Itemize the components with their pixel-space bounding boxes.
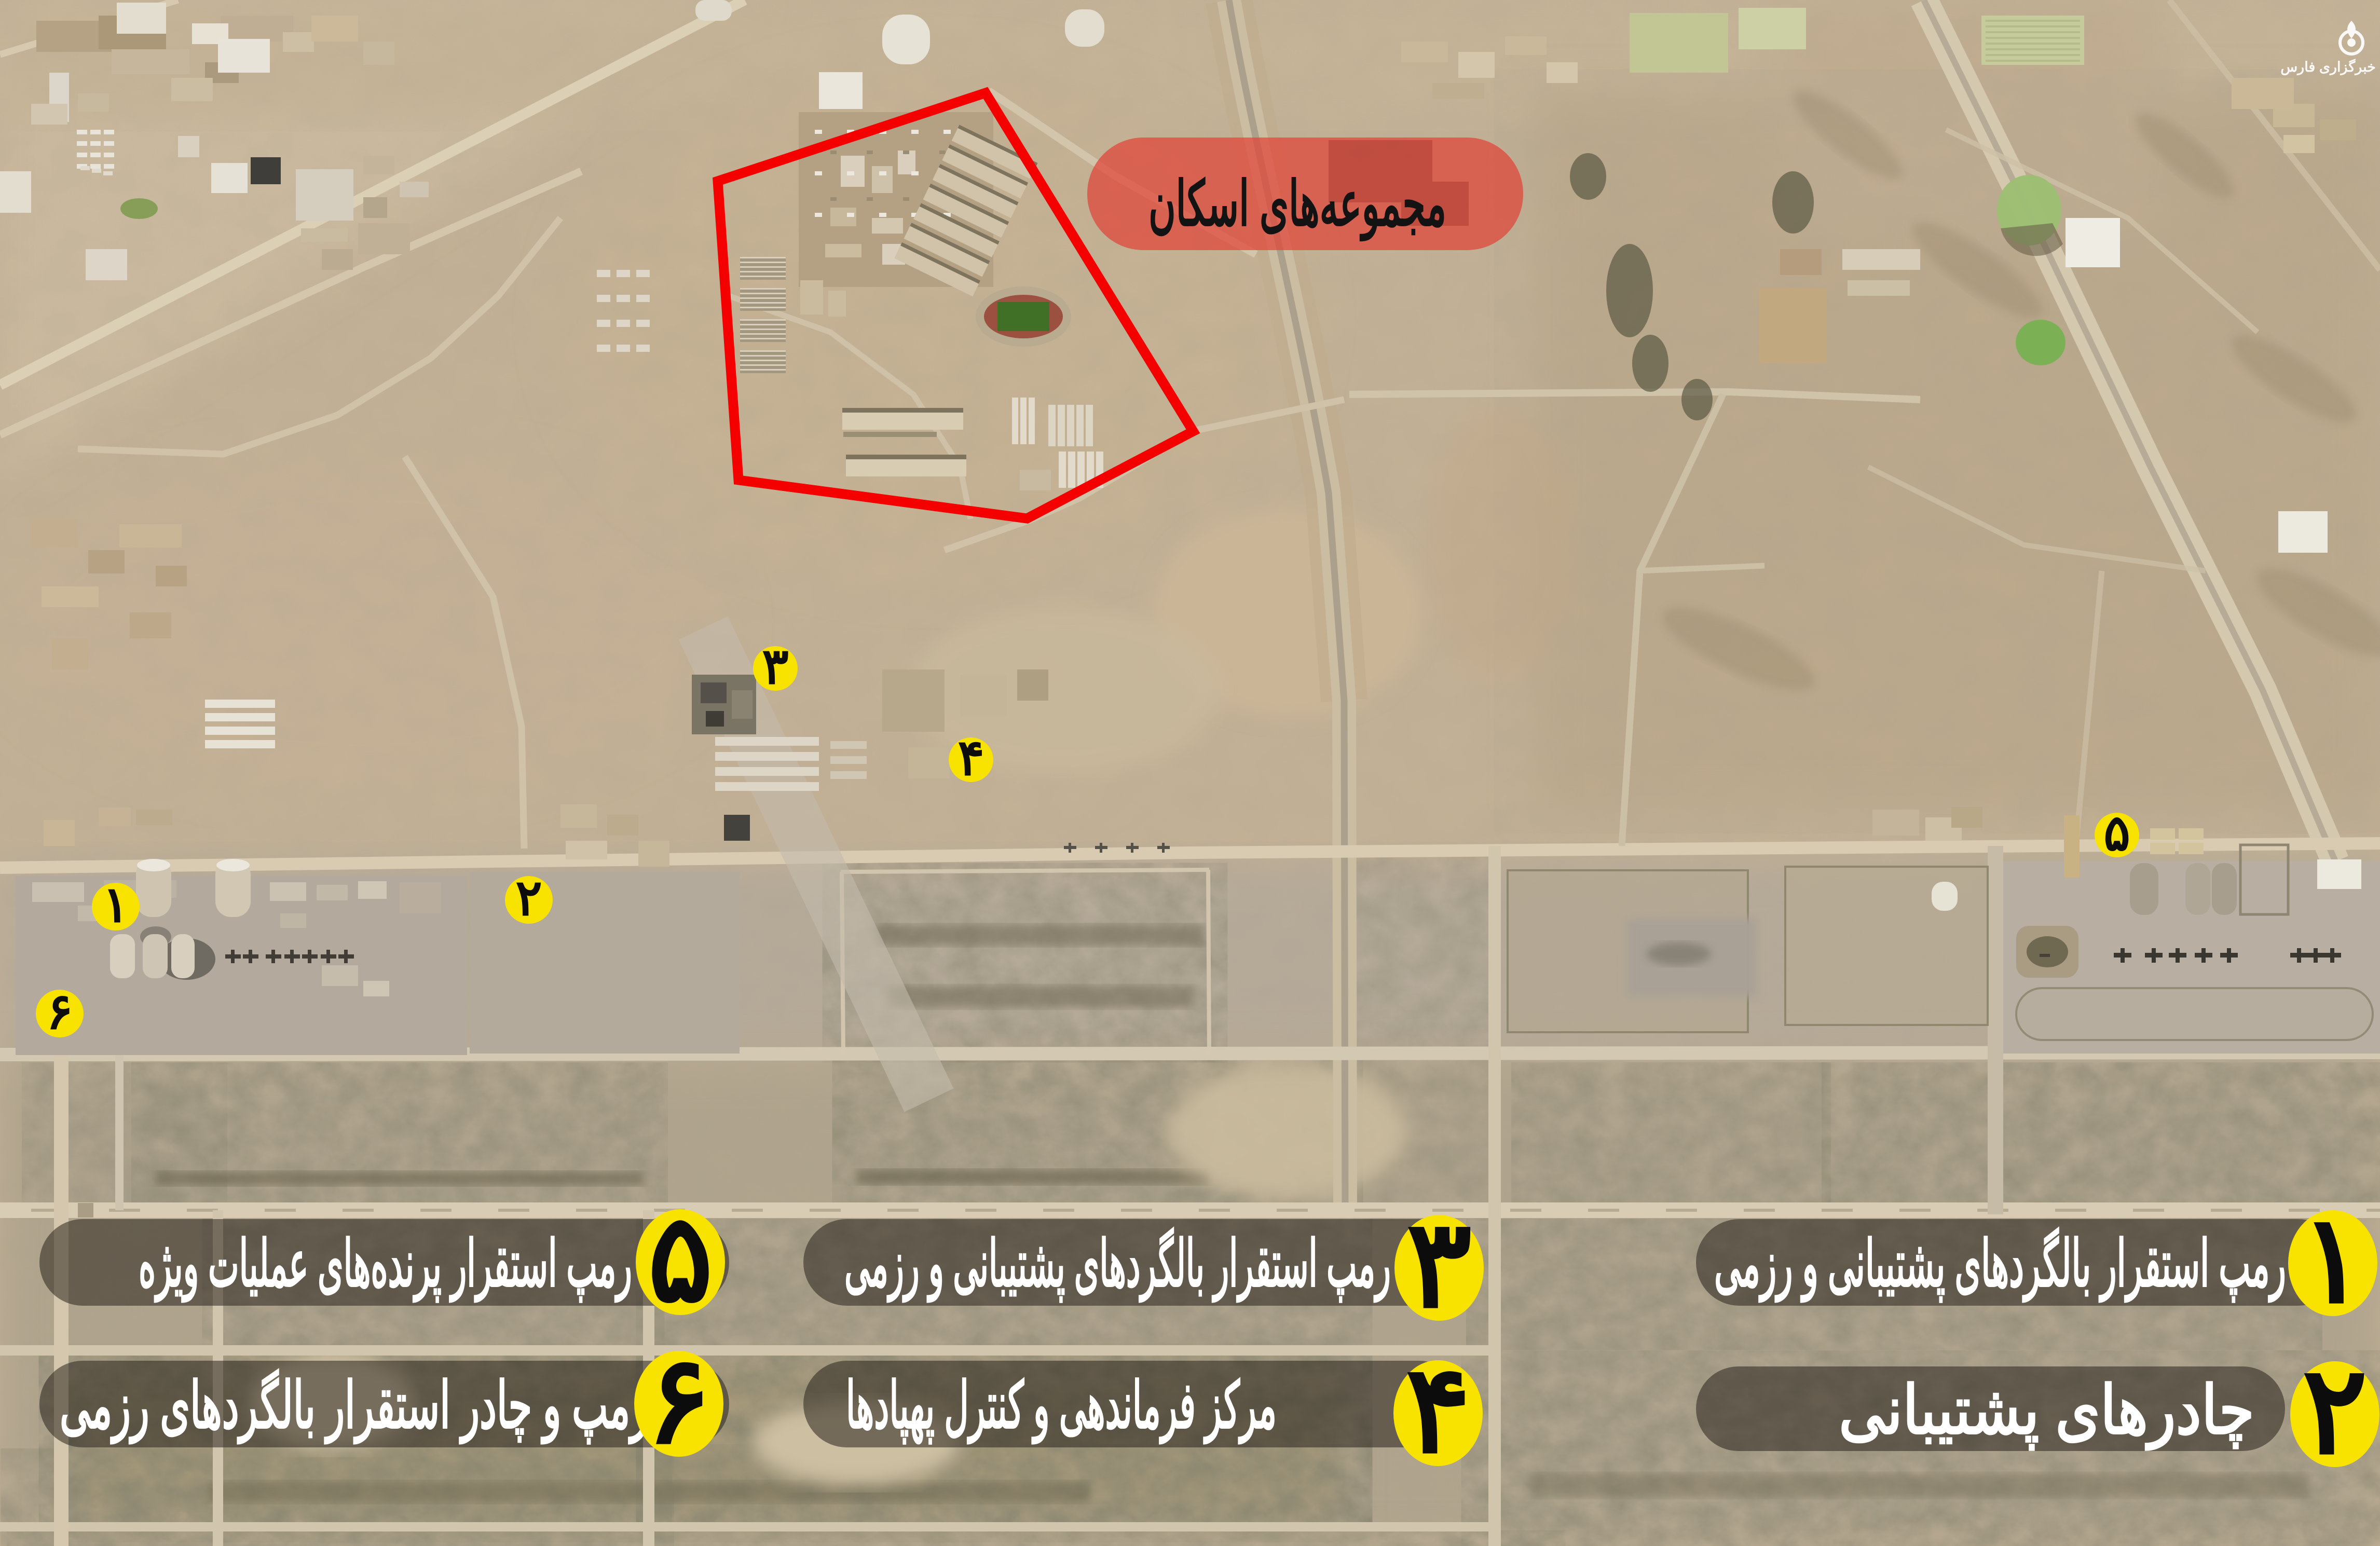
svg-text:۲: ۲ (515, 870, 542, 926)
svg-text:چادرهای پشتیبانی: چادرهای پشتیبانی (1839, 1372, 2254, 1451)
svg-text:۳: ۳ (762, 639, 789, 694)
svg-text:رمپ استقرار بالگردهای پشتیبانی: رمپ استقرار بالگردهای پشتیبانی و رزمی (844, 1226, 1391, 1303)
svg-text:۵: ۵ (648, 1190, 713, 1326)
svg-text:۱: ۱ (2300, 1191, 2365, 1328)
svg-text:۴: ۴ (1405, 1341, 1471, 1477)
svg-text:۲: ۲ (2302, 1342, 2368, 1479)
svg-text:۶: ۶ (646, 1332, 712, 1468)
svg-text:۶: ۶ (46, 984, 73, 1039)
svg-text:۵: ۵ (2103, 805, 2130, 861)
svg-text:رمپ و چادر استقرار بالگردهای ر: رمپ و چادر استقرار بالگردهای رزمی (60, 1368, 649, 1445)
svg-text:مرکز فرماندهی و کنترل پهپادها: مرکز فرماندهی و کنترل پهپادها (846, 1370, 1277, 1445)
svg-text:رمپ استقرار پرنده‌های عملیات و: رمپ استقرار پرنده‌های عملیات ویژه (139, 1228, 632, 1303)
svg-text:رمپ استقرار بالگردهای پشتیبانی: رمپ استقرار بالگردهای پشتیبانی و رزمی (1714, 1226, 2286, 1303)
svg-text:۴: ۴ (958, 730, 984, 786)
svg-text:۱: ۱ (102, 877, 129, 933)
svg-text:۳: ۳ (1406, 1196, 1472, 1332)
svg-text:خبرگزاری فارس: خبرگزاری فارس (2280, 59, 2376, 76)
svg-text:مجموعه‌های اسکان: مجموعه‌های اسکان (1148, 169, 1446, 242)
